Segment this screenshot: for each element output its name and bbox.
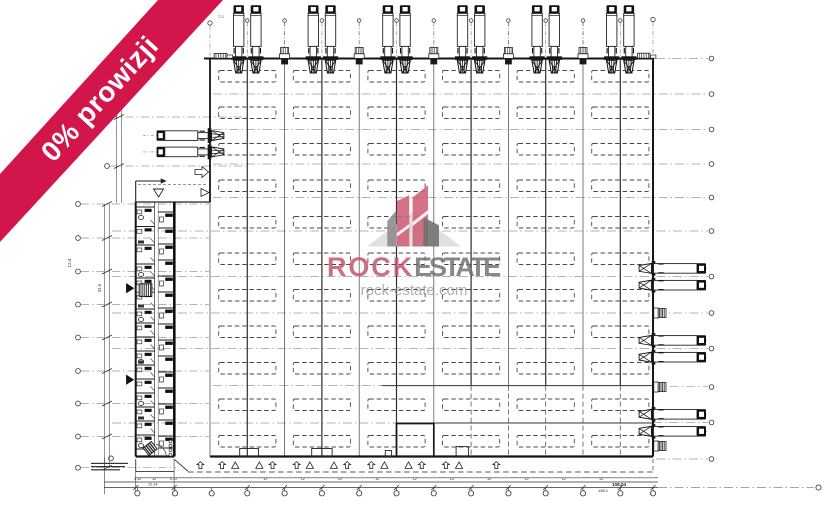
svg-text:108,04: 108,04 bbox=[612, 482, 626, 487]
svg-text:12: 12 bbox=[338, 477, 342, 481]
svg-text:12: 12 bbox=[375, 477, 379, 481]
svg-text:7.2: 7.2 bbox=[218, 14, 224, 19]
svg-text:12: 12 bbox=[413, 477, 417, 481]
svg-text:34.5: 34.5 bbox=[97, 283, 102, 292]
svg-text:12: 12 bbox=[152, 477, 156, 481]
svg-text:12: 12 bbox=[487, 477, 491, 481]
svg-text:0.12: 0.12 bbox=[134, 477, 141, 481]
svg-text:12: 12 bbox=[263, 477, 267, 481]
svg-text:198.1: 198.1 bbox=[598, 488, 609, 493]
svg-text:0.12: 0.12 bbox=[170, 477, 177, 481]
svg-text:12: 12 bbox=[599, 477, 603, 481]
svg-text:12.4: 12.4 bbox=[67, 258, 72, 267]
svg-text:12: 12 bbox=[562, 477, 566, 481]
svg-text:rock-estate.com: rock-estate.com bbox=[361, 282, 468, 299]
svg-text:12: 12 bbox=[524, 477, 528, 481]
svg-text:12.14: 12.14 bbox=[148, 483, 158, 487]
svg-text:ROCKESTATE: ROCKESTATE bbox=[327, 252, 500, 282]
svg-text:12: 12 bbox=[450, 477, 454, 481]
svg-text:12: 12 bbox=[301, 477, 305, 481]
